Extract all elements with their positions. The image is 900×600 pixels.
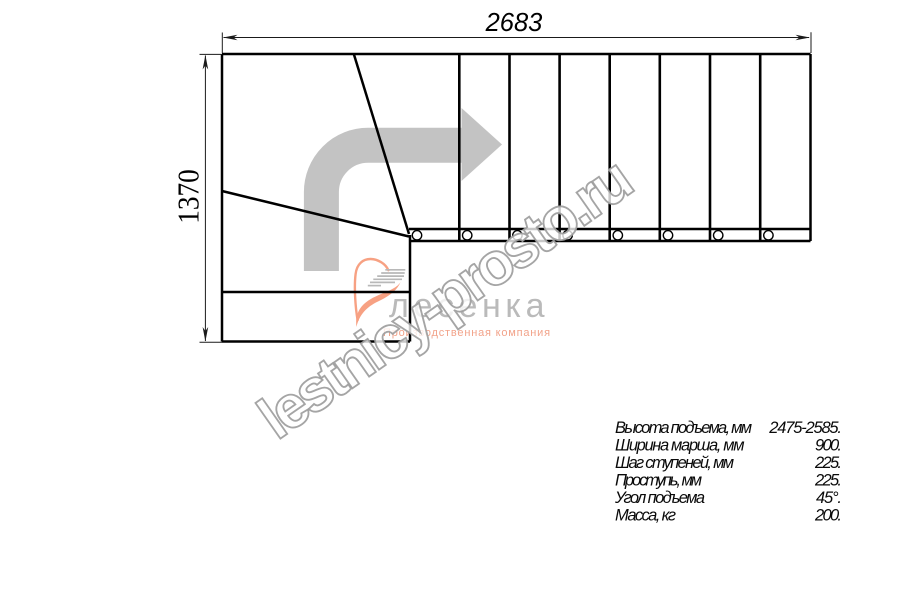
svg-text:200.: 200.	[814, 507, 842, 525]
svg-text:Шаг ступеней, мм: Шаг ступеней, мм	[615, 454, 734, 472]
svg-text:Масса, кг: Масса, кг	[615, 507, 676, 525]
svg-text:Ширина марша, мм: Ширина марша, мм	[615, 437, 745, 455]
svg-text:45°.: 45°.	[816, 489, 842, 507]
svg-text:1370: 1370	[172, 169, 206, 224]
svg-text:225.: 225.	[814, 472, 842, 490]
svg-text:Угол подъема: Угол подъема	[614, 489, 705, 507]
svg-text:Высота подъема, мм: Высота подъема, мм	[615, 419, 752, 437]
svg-text:225.: 225.	[814, 454, 842, 472]
svg-text:900.: 900.	[815, 437, 842, 455]
svg-text:2683: 2683	[485, 9, 543, 37]
svg-text:2475-2585.: 2475-2585.	[768, 419, 842, 437]
svg-text:Проступь, мм: Проступь, мм	[615, 472, 702, 490]
